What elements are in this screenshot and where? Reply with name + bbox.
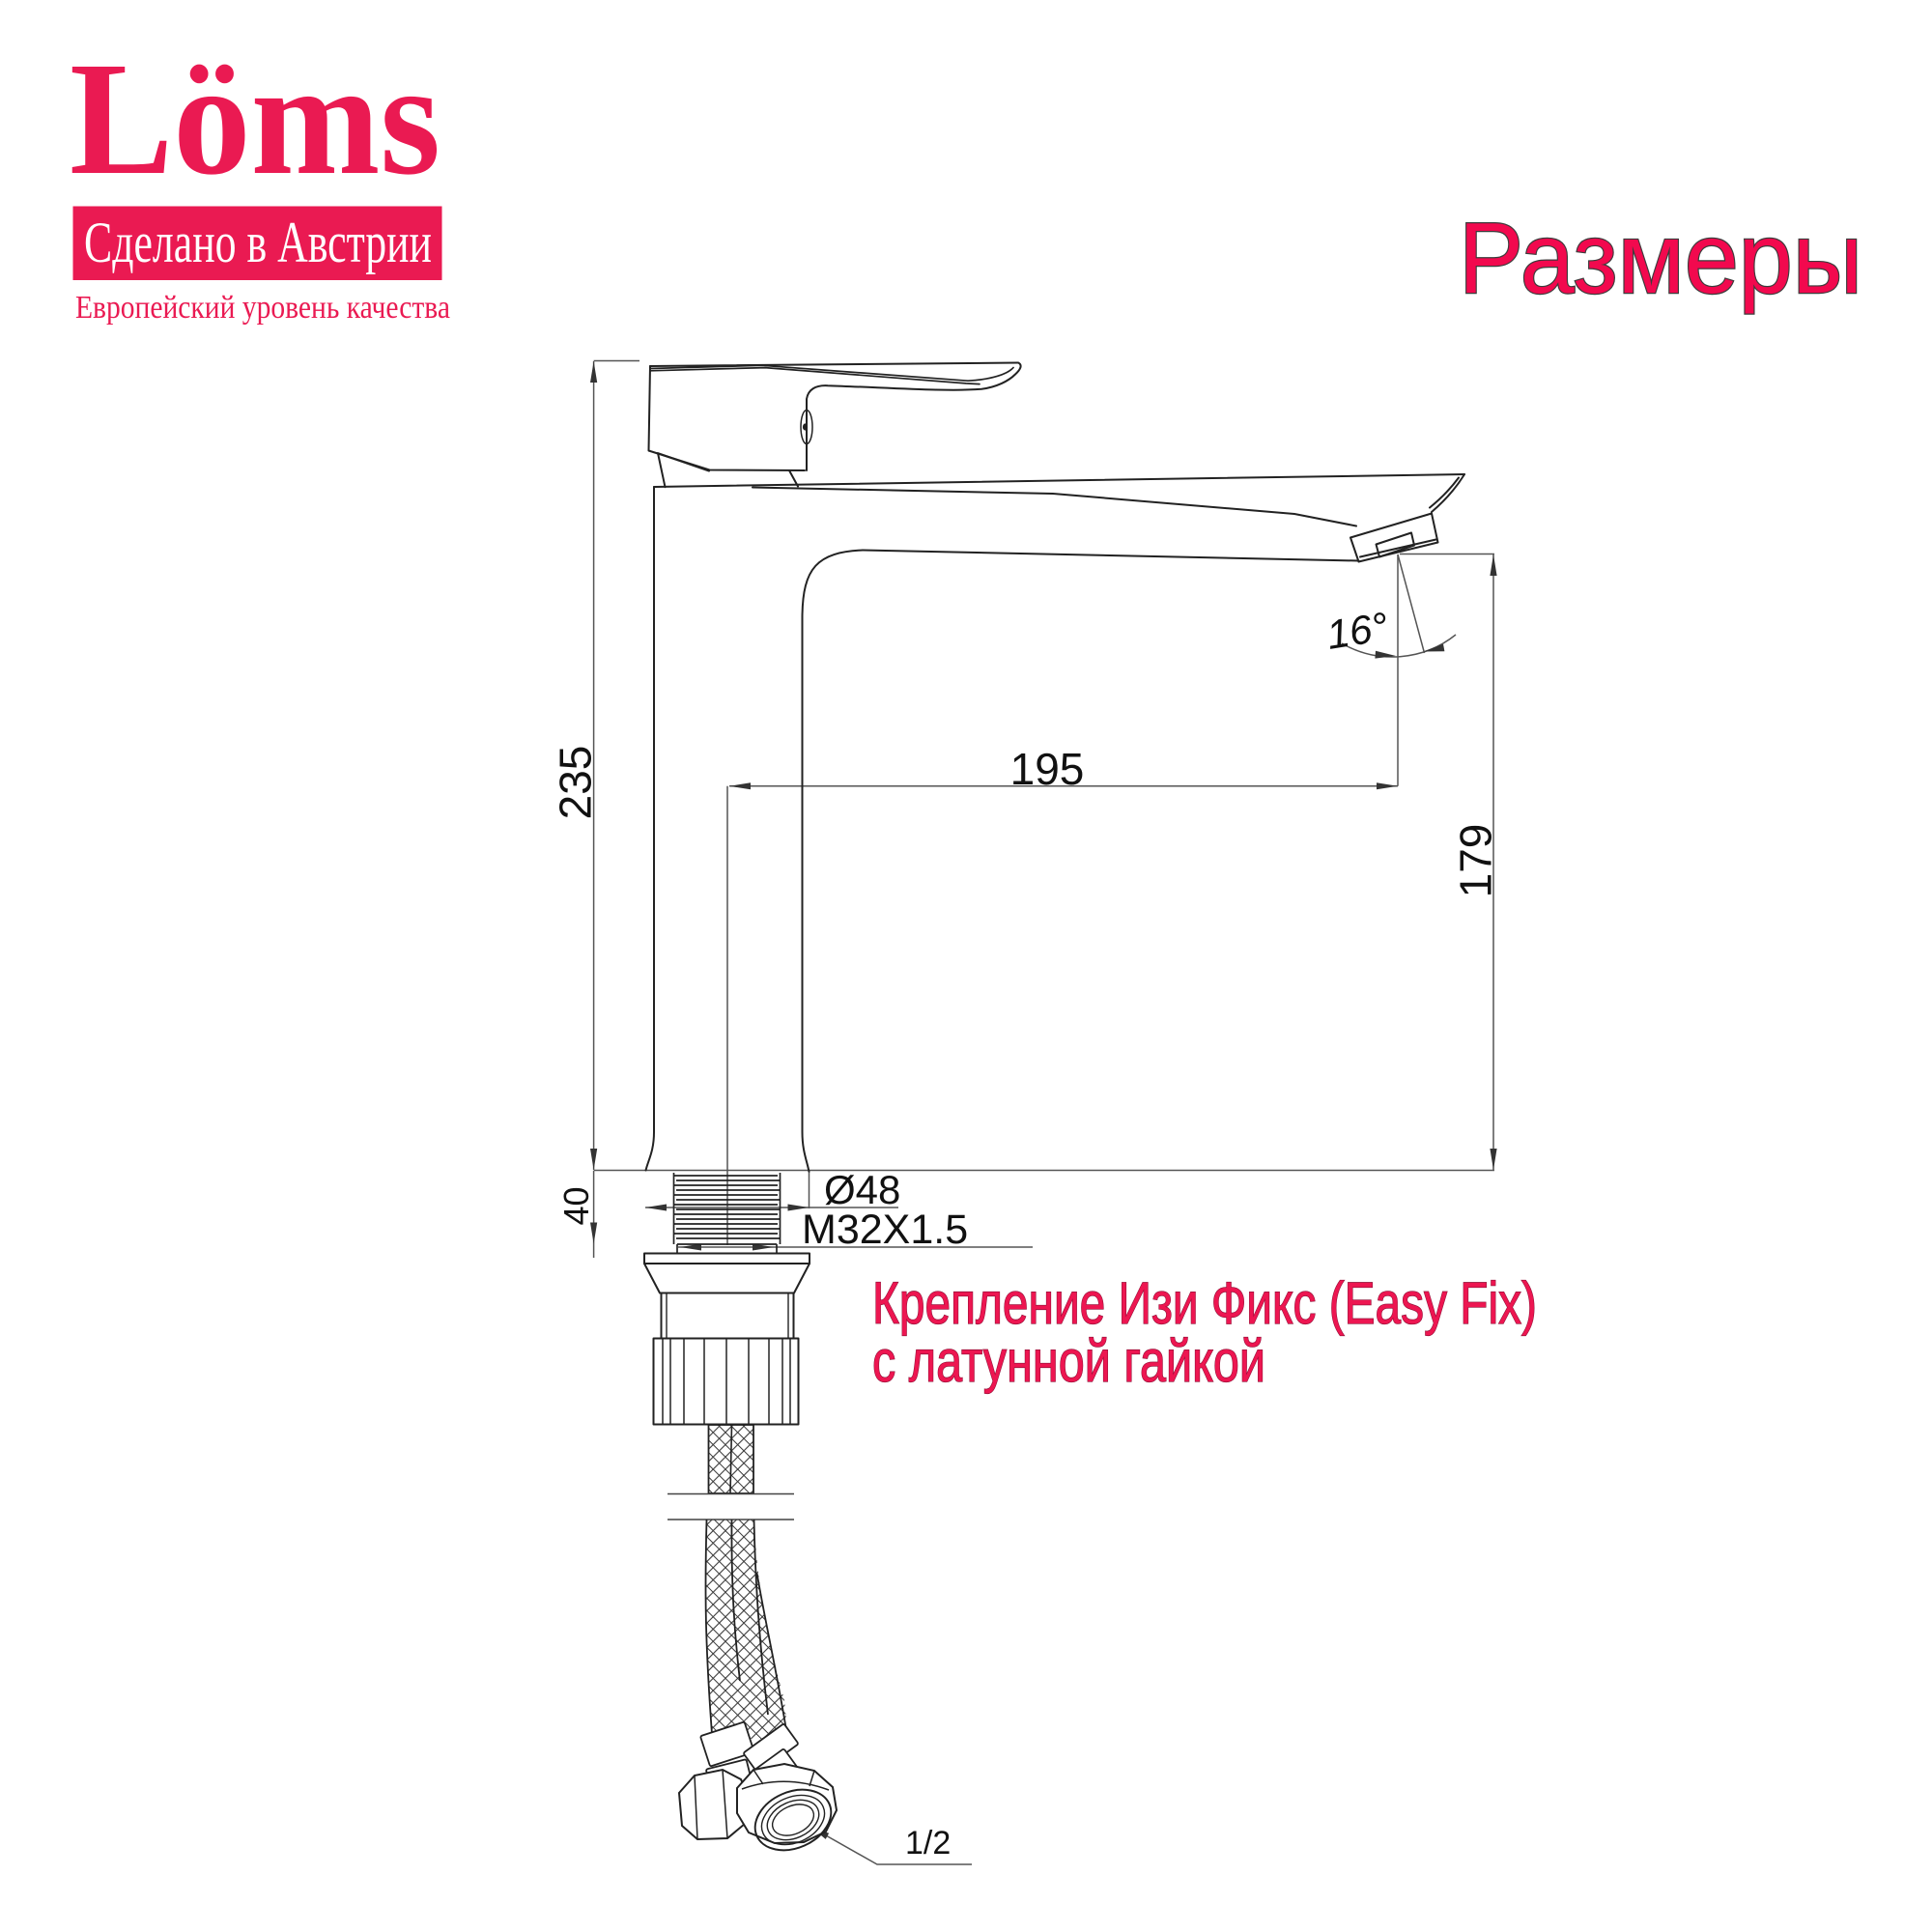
svg-text:179: 179 bbox=[1451, 824, 1501, 898]
svg-text:235: 235 bbox=[551, 746, 601, 820]
svg-text:195: 195 bbox=[1010, 744, 1085, 794]
svg-text:Размеры: Размеры bbox=[1459, 203, 1862, 315]
svg-text:Крепление Изи Фикс (Easy Fix): Крепление Изи Фикс (Easy Fix) bbox=[872, 1270, 1537, 1336]
svg-text:Löms: Löms bbox=[70, 29, 440, 209]
svg-text:Ø48: Ø48 bbox=[824, 1167, 900, 1212]
svg-text:40: 40 bbox=[556, 1186, 596, 1225]
svg-text:с латунной гайкой: с латунной гайкой bbox=[872, 1328, 1265, 1394]
svg-text:16°: 16° bbox=[1323, 604, 1391, 658]
svg-text:M32X1.5: M32X1.5 bbox=[802, 1207, 968, 1253]
svg-text:Сделано в Австрии: Сделано в Австрии bbox=[84, 211, 432, 274]
svg-text:Европейский уровень качества: Европейский уровень качества bbox=[75, 290, 450, 326]
svg-text:1/2: 1/2 bbox=[905, 1825, 951, 1861]
